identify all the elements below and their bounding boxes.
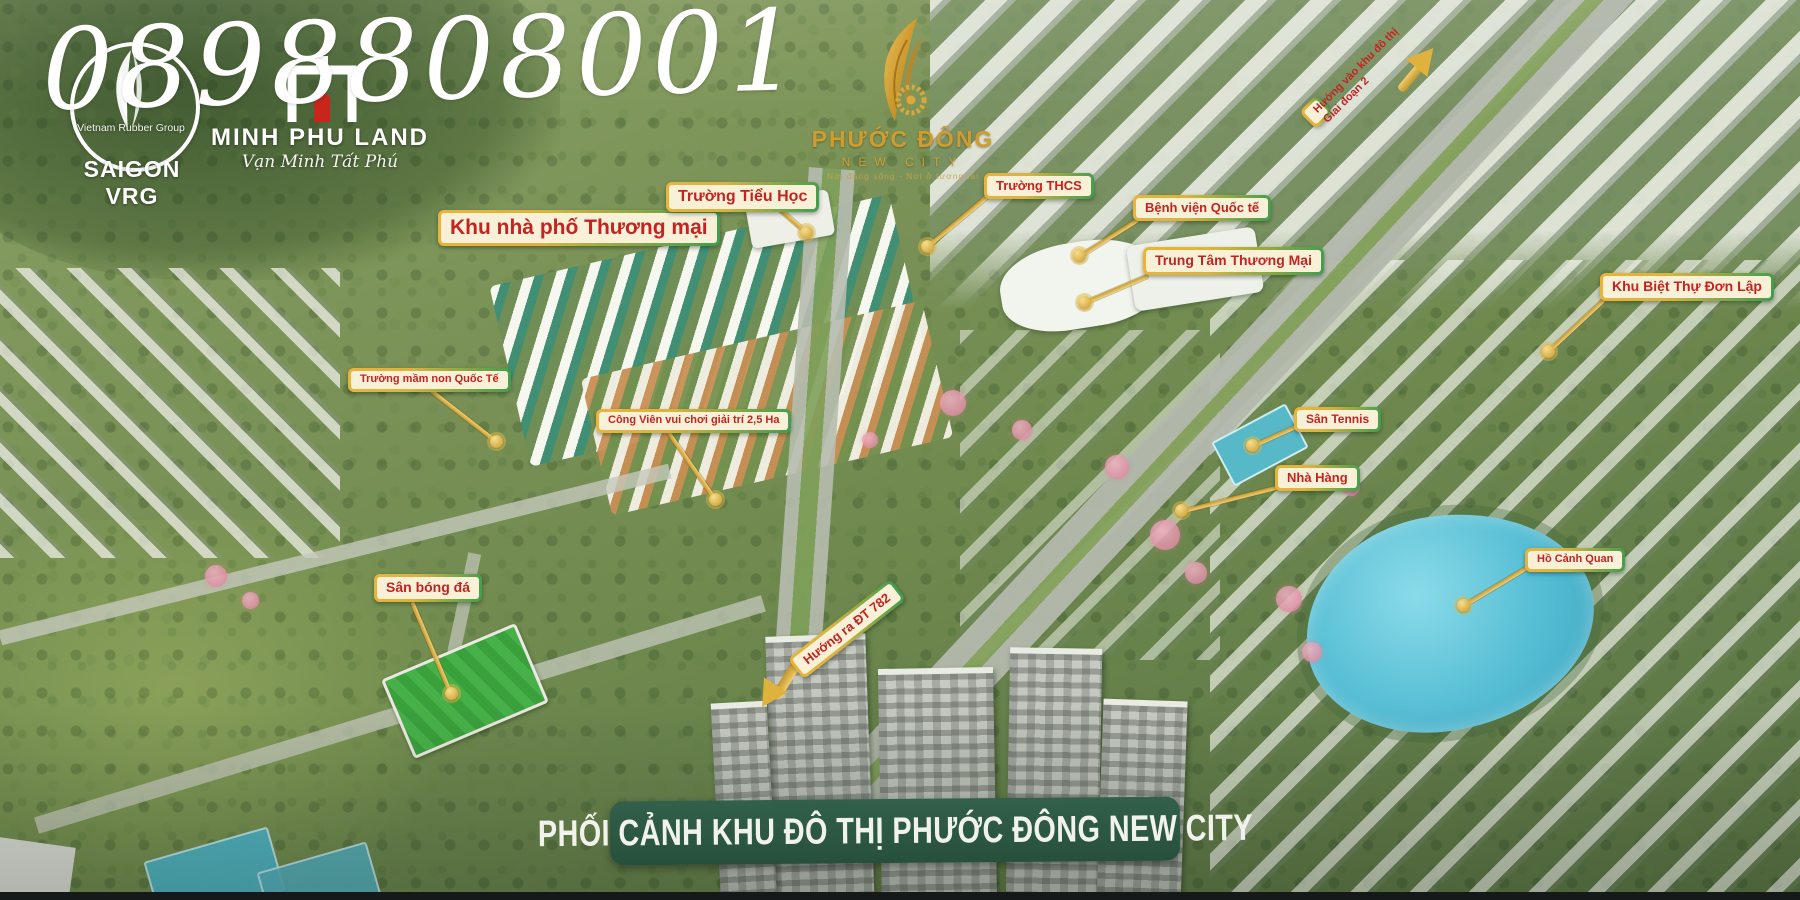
callout-khu-nha-pho-thuong-mai: Khu nhà phố Thương mại bbox=[438, 210, 720, 246]
watermark-phone-number: 0898808001 bbox=[40, 0, 806, 136]
marker-dot bbox=[490, 435, 503, 448]
apartment-tower bbox=[1006, 647, 1102, 900]
marker-dot bbox=[1542, 345, 1555, 358]
blossom-tree bbox=[1150, 520, 1180, 550]
project-name: PHƯỚC ĐÔNG bbox=[778, 126, 1028, 153]
callout-khu-biet-thu-don-lap: Khu Biệt Thự Đơn Lập bbox=[1600, 273, 1774, 301]
callout-san-bong-da: Sân bóng đá bbox=[374, 574, 482, 602]
project-tagline: Nơi đáng sống - Nơi ở tương lai bbox=[778, 171, 1028, 181]
villa-rows-left bbox=[0, 268, 340, 558]
marker-dot bbox=[709, 493, 722, 506]
marker-dot bbox=[1073, 249, 1086, 262]
blossom-tree bbox=[1105, 455, 1129, 479]
blossom-tree bbox=[940, 390, 966, 416]
marker-dot bbox=[800, 226, 813, 239]
vrg-logo-name: SAIGON VRG bbox=[72, 156, 192, 210]
callout-label: Trường mầm non Quốc Tế bbox=[351, 371, 508, 389]
callout-truong-tieu-hoc: Trường Tiểu Học bbox=[666, 182, 819, 212]
caption-banner: PHỐI CẢNH KHU ĐÔ THỊ PHƯỚC ĐÔNG NEW CITY bbox=[610, 797, 1181, 866]
callout-san-tennis: Sân Tennis bbox=[1294, 407, 1381, 432]
callout-benh-vien-quoc-te: Bệnh viện Quốc tế bbox=[1133, 195, 1271, 221]
marker-dot bbox=[921, 240, 934, 253]
blossom-tree bbox=[1276, 586, 1302, 612]
callout-label: Trường Tiểu Học bbox=[669, 185, 816, 209]
apartment-tower bbox=[878, 667, 997, 900]
caption-text: PHỐI CẢNH KHU ĐÔ THỊ PHƯỚC ĐÔNG NEW CITY bbox=[537, 807, 1252, 855]
blossom-tree bbox=[1302, 642, 1322, 662]
callout-label: Hồ Cảnh Quan bbox=[1528, 551, 1622, 569]
building bbox=[0, 837, 76, 900]
masterplan-render: Khu nhà phố Thương mại Trường Tiểu Học T… bbox=[0, 0, 1800, 900]
callout-label: Sân Tennis bbox=[1297, 410, 1378, 429]
marker-dot bbox=[445, 687, 458, 700]
marker-dot bbox=[1078, 296, 1091, 309]
callout-label: Trung Tâm Thương Mại bbox=[1146, 250, 1321, 272]
callout-truong-mam-non-quoc-te: Trường mầm non Quốc Tế bbox=[348, 368, 511, 392]
callout-label: Công Viên vui chơi giải trí 2,5 Ha bbox=[599, 412, 788, 430]
callout-label: Bệnh viện Quốc tế bbox=[1136, 198, 1268, 218]
callout-ho-canh-quan: Hồ Cảnh Quan bbox=[1525, 548, 1625, 572]
marker-dot bbox=[1175, 504, 1188, 517]
callout-nha-hang: Nhà Hàng bbox=[1275, 465, 1360, 491]
minh-phu-land-slogan: Vạn Minh Tất Phú bbox=[200, 152, 440, 172]
road-label-text: Hướng vào khu đô thị Giai đoạn 2 bbox=[1303, 99, 1328, 124]
project-logo-text: PHƯỚC ĐÔNG NEW CITY Nơi đáng sống - Nơi … bbox=[778, 126, 1028, 181]
callout-cong-vien-vui-choi: Công Viên vui chơi giải trí 2,5 Ha bbox=[596, 409, 791, 433]
blossom-tree bbox=[862, 432, 878, 448]
blossom-tree bbox=[242, 592, 259, 609]
project-subtitle: NEW CITY bbox=[778, 155, 1028, 169]
marker-dot bbox=[1457, 599, 1470, 612]
callout-label: Nhà Hàng bbox=[1278, 468, 1357, 488]
callout-label: Khu nhà phố Thương mại bbox=[441, 213, 717, 243]
blossom-tree bbox=[1012, 420, 1032, 440]
callout-label: Sân bóng đá bbox=[377, 577, 479, 599]
blossom-tree bbox=[1185, 562, 1207, 584]
blossom-tree bbox=[205, 565, 227, 587]
bottom-bar bbox=[0, 892, 1800, 900]
marker-dot bbox=[1246, 439, 1259, 452]
callout-label: Khu Biệt Thự Đơn Lập bbox=[1603, 276, 1771, 298]
callout-trung-tam-thuong-mai: Trung Tâm Thương Mại bbox=[1143, 247, 1324, 275]
